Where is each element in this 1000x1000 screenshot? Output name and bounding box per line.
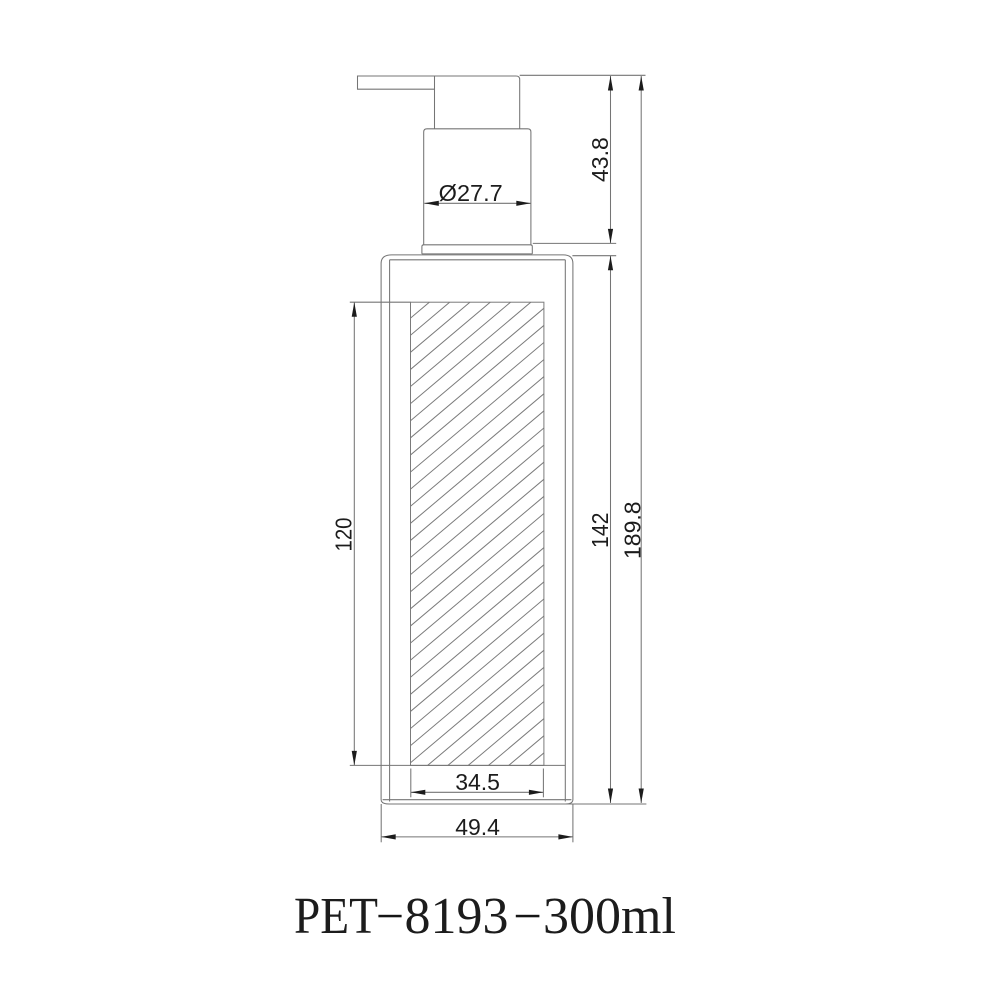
svg-text:189.8: 189.8 bbox=[619, 501, 645, 559]
svg-text:34.5: 34.5 bbox=[455, 769, 500, 795]
svg-text:49.4: 49.4 bbox=[455, 814, 500, 840]
svg-text:PET: PET bbox=[294, 888, 378, 945]
svg-text:120: 120 bbox=[331, 518, 357, 552]
svg-text:8193: 8193 bbox=[405, 888, 509, 945]
svg-text:300ml: 300ml bbox=[543, 888, 676, 945]
svg-text:43.8: 43.8 bbox=[587, 137, 613, 182]
svg-text:142: 142 bbox=[587, 513, 613, 549]
svg-text:Ø27.7: Ø27.7 bbox=[439, 180, 503, 206]
